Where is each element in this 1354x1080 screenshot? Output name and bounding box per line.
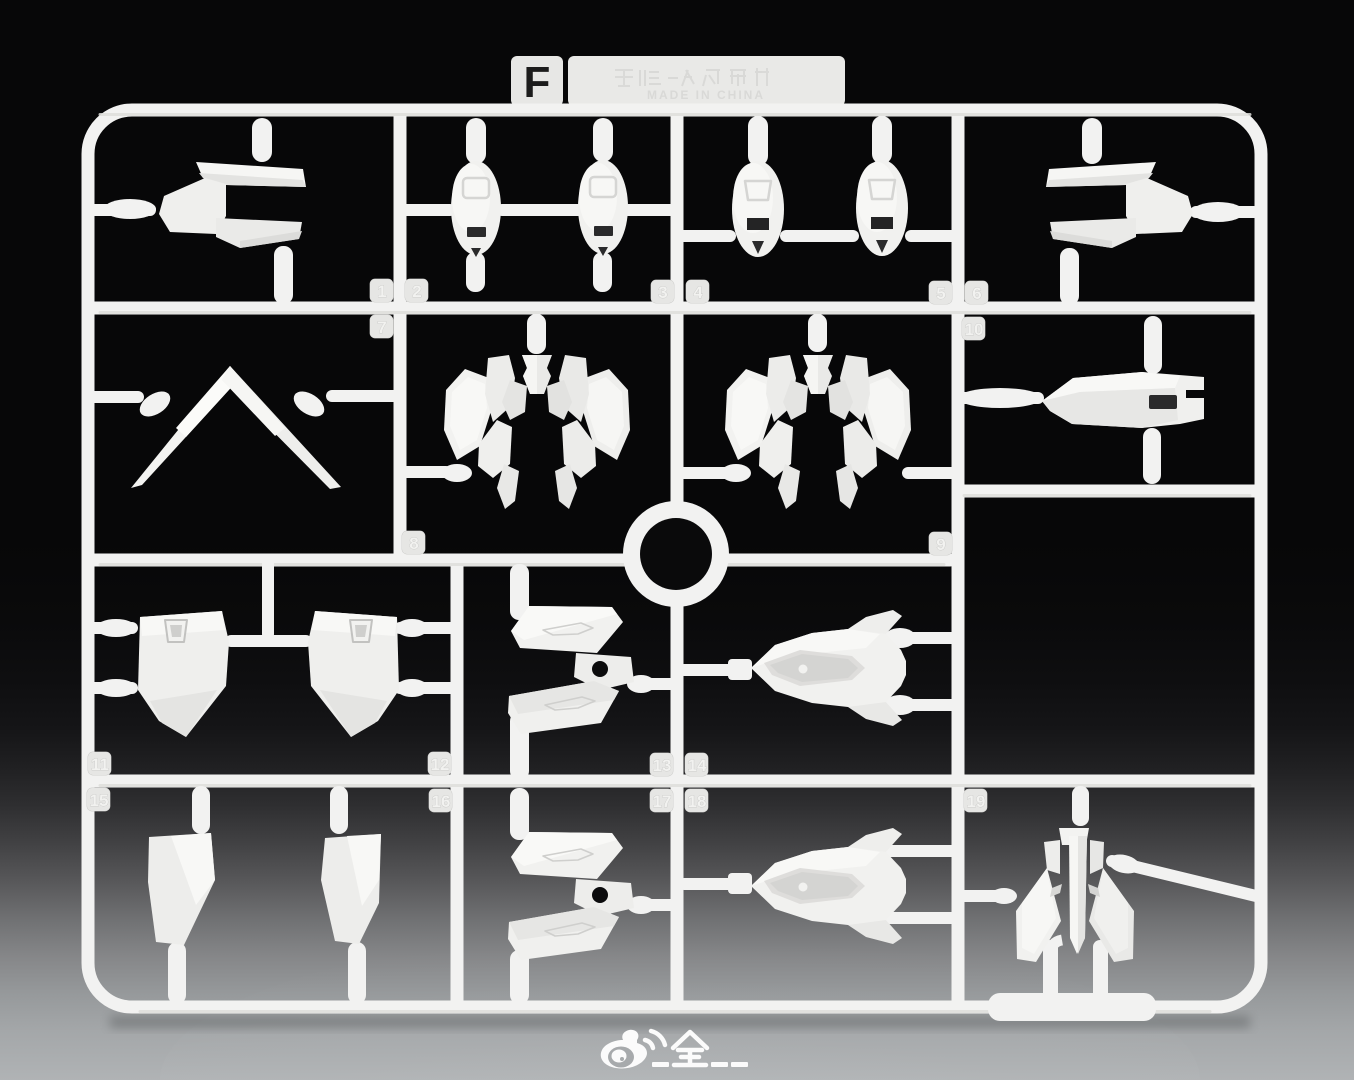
svg-text:18: 18 <box>688 792 707 811</box>
svg-text:19: 19 <box>967 792 986 811</box>
svg-text:9: 9 <box>936 535 945 554</box>
svg-text:1: 1 <box>377 282 386 301</box>
svg-text:F: F <box>524 58 551 107</box>
svg-text:17: 17 <box>653 792 672 811</box>
svg-text:5: 5 <box>936 284 945 303</box>
svg-text:3: 3 <box>658 283 667 302</box>
svg-text:12: 12 <box>431 755 450 774</box>
svg-text:15: 15 <box>90 791 109 810</box>
svg-text:6: 6 <box>972 284 981 303</box>
svg-text:14: 14 <box>688 756 707 775</box>
svg-text:4: 4 <box>693 283 703 302</box>
svg-text:MADE IN CHINA: MADE IN CHINA <box>647 88 765 102</box>
svg-text:7: 7 <box>377 318 386 337</box>
svg-text:2: 2 <box>412 282 421 301</box>
svg-text:11: 11 <box>91 755 109 774</box>
svg-text:13: 13 <box>653 756 672 775</box>
svg-text:10: 10 <box>965 320 984 339</box>
svg-text:16: 16 <box>432 792 451 811</box>
svg-text:8: 8 <box>409 534 418 553</box>
